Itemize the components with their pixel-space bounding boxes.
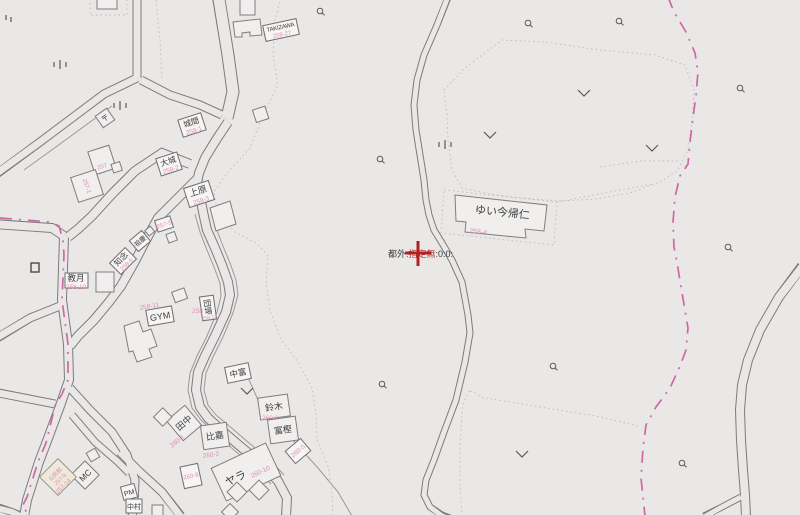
svg-text:教月: 教月 [67, 273, 84, 283]
svg-text:中村: 中村 [127, 502, 141, 511]
svg-text:258: 258 [192, 308, 203, 315]
svg-text:258-10: 258-10 [66, 284, 87, 291]
